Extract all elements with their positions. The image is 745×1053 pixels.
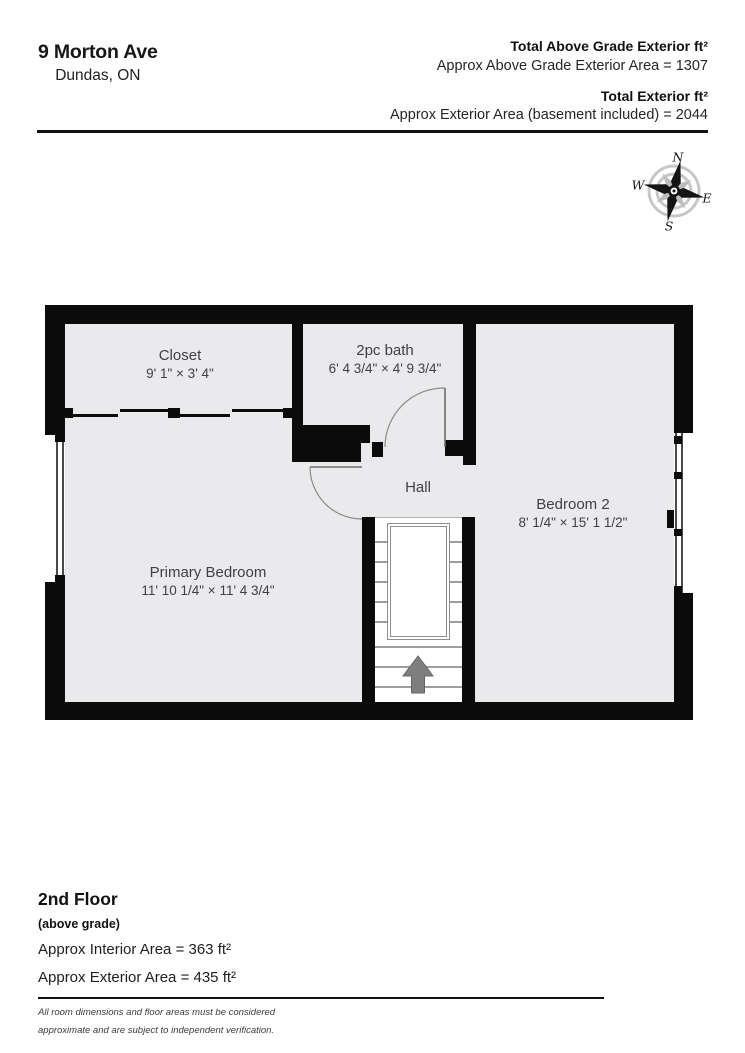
wall-bottom [45,702,693,720]
footer-divider [38,997,604,999]
total-exterior-value: Approx Exterior Area (basement included)… [390,107,708,123]
total-above-grade-label: Total Above Grade Exterior ft² [510,38,708,54]
compass-west-label: W [632,178,646,193]
window-left [45,435,65,582]
compass-north-label: N [672,150,685,165]
room-label-primary: Primary Bedroom 11' 10 1/4" × 11' 4 3/4" [141,564,274,600]
address-line: 9 Morton Ave [38,41,158,64]
wall-bath-bottom-b [293,443,361,462]
wall-bath-bedroom2-divider [463,324,476,465]
city-line: Dundas, ON [38,67,158,85]
sliding-door-panel [232,409,283,412]
room-label-closet: Closet 9' 1" × 3' 4" [146,347,214,383]
wall-bath-door-jamb-left [372,442,383,457]
window-right [674,433,693,593]
header-divider [37,130,708,133]
total-above-grade-value: Approx Above Grade Exterior Area = 1307 [437,58,708,74]
disclaimer-line-1: All room dimensions and floor areas must… [38,1007,275,1018]
floor-title: 2nd Floor [38,889,118,910]
sliding-door-stop-right [283,408,295,418]
interior-area-line: Approx Interior Area = 363 ft² [38,941,231,958]
compass-south-label: S [665,219,674,234]
total-exterior-label: Total Exterior ft² [601,88,708,104]
floor-plan: Closet 9' 1" × 3' 4" 2pc bath 6' 4 3/4" … [45,305,693,720]
exterior-area-line: Approx Exterior Area = 435 ft² [38,969,236,986]
wall-right-upper [674,305,693,433]
wall-left-upper [45,305,65,435]
compass-rose-icon: N E S W [630,144,725,239]
wall-closet-bath-divider [292,324,303,462]
bath-door-swing-arc [385,388,445,447]
wall-stairs-left [362,517,375,702]
floor-subtitle: (above grade) [38,917,120,931]
staircase [375,517,462,702]
wall-top [45,305,693,324]
floorplan-page: { "header": { "address_line1": "9 Morton… [0,0,745,1053]
wall-right-lower [674,593,693,720]
room-label-bath: 2pc bath 6' 4 3/4" × 4' 9 3/4" [329,342,442,378]
sliding-door-stop-center [168,408,180,418]
disclaimer-line-2: approximate and are subject to independe… [38,1025,274,1036]
compass-east-label: E [701,191,711,206]
bedroom-door-swing-arc [310,467,362,519]
sliding-door-panel [120,409,168,412]
sliding-door-panel [70,414,118,417]
room-label-hall: Hall [405,479,431,497]
room-label-bedroom2: Bedroom 2 8' 1/4" × 15' 1 1/2" [519,496,628,532]
sliding-door-panel [180,414,230,417]
wall-left-lower [45,582,65,720]
stairwell-opening [387,523,450,640]
sliding-door-stop-left [63,408,73,418]
property-address: 9 Morton Ave Dundas, ON [38,41,158,85]
wall-stairs-right [462,517,475,702]
wall-bath-bottom-a [303,425,370,443]
